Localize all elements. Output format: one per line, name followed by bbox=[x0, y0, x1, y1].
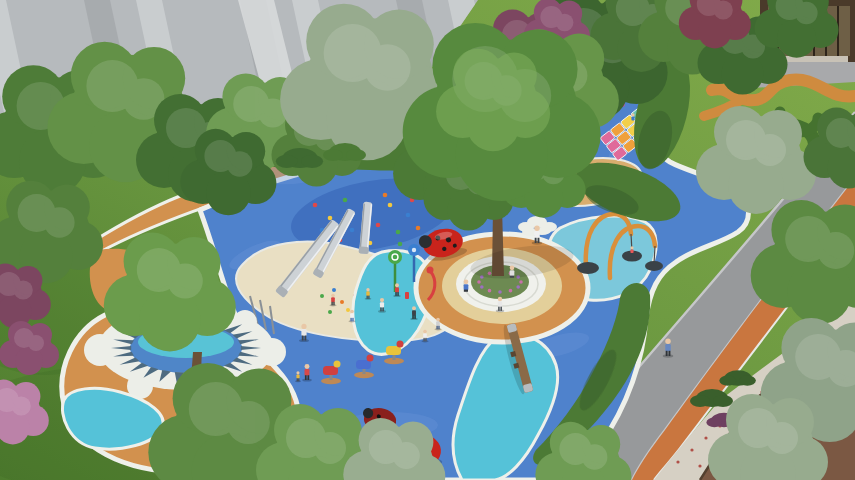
child bbox=[631, 113, 634, 120]
child-in-swing bbox=[630, 246, 633, 253]
person-sitting bbox=[464, 280, 469, 292]
basket-seat bbox=[645, 261, 663, 271]
person-sitting bbox=[510, 266, 515, 278]
playground-aerial-render bbox=[0, 0, 855, 480]
spray-toy-green bbox=[388, 250, 402, 264]
render-canvas bbox=[0, 0, 855, 480]
spray-hydrant bbox=[405, 292, 409, 299]
basket-seat bbox=[577, 262, 599, 274]
